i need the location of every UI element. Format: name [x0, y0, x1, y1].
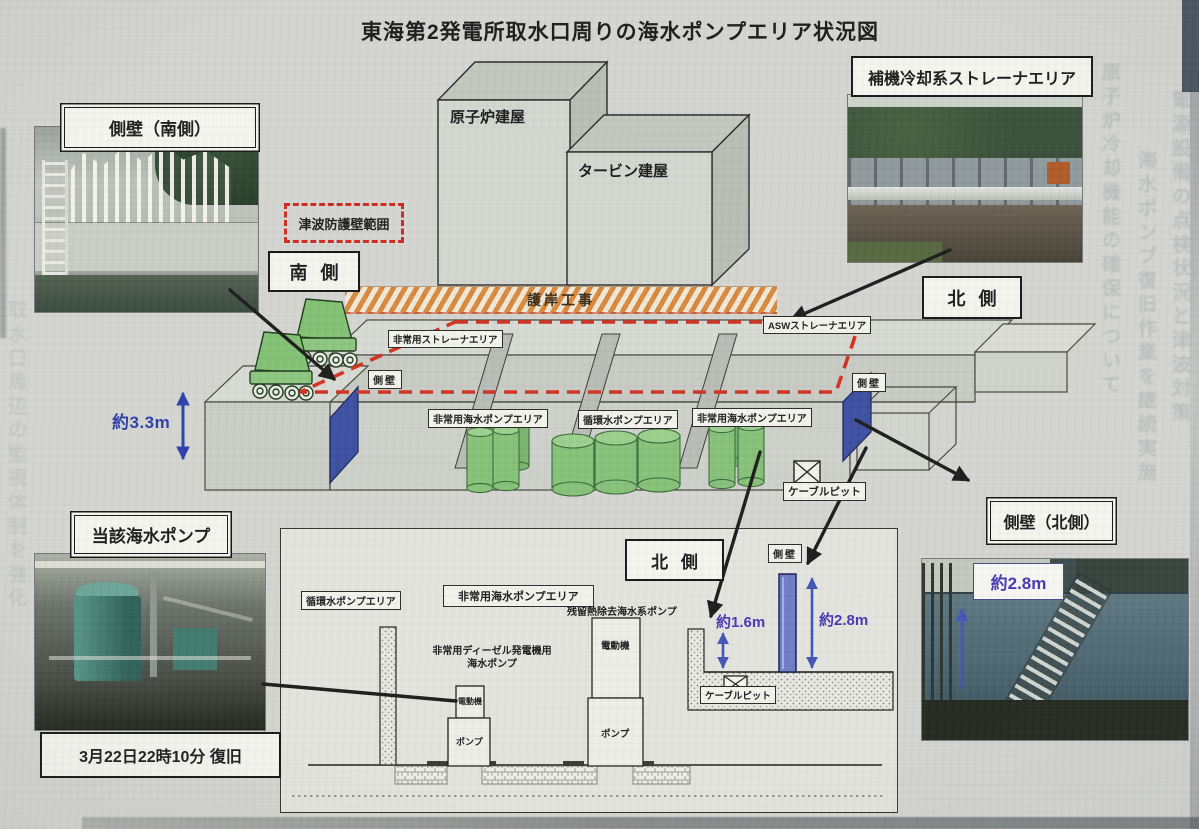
pump-right-label: ポンプ: [601, 726, 629, 740]
scanned-diagram-page: 原子炉冷却機能の確保について 海水ポンプ復旧作業を継続実施 電源設備の点検状況と…: [0, 0, 1199, 829]
section-circulating-area-label: 循環水ポンプエリア: [301, 591, 401, 610]
north-side-label: 北 側: [922, 276, 1022, 319]
motor-right-label: 電動機: [601, 638, 630, 652]
turbine-building-label: タービン建屋: [578, 160, 668, 181]
diesel-seawater-pump-label: 非常用ディーゼル発電機用 海水ポンプ: [418, 646, 566, 671]
height-3-3m-label: 約3.3m: [112, 408, 170, 433]
aux-strainer-label: 補機冷却系ストレーナエリア: [851, 56, 1093, 97]
sidewall-left-label: 側壁: [368, 370, 402, 389]
cable-pit-label: ケーブルピット: [783, 482, 866, 501]
section-north-side-label: 北 側: [625, 539, 724, 581]
pump-left-label: ポンプ: [456, 735, 483, 748]
sidewall-right-label: 側壁: [852, 373, 886, 392]
reactor-building-label: 原子炉建屋: [450, 106, 525, 127]
page-title: 東海第2発電所取水口周りの海水ポンプエリア状況図: [340, 16, 900, 46]
emergency-pump-area-left-label: 非常用海水ポンプエリア: [428, 409, 548, 428]
sidewall-north-label: 側壁（北側）: [990, 501, 1113, 541]
sidewall-south-label: 側壁（南側）: [64, 107, 256, 148]
emergency-strainer-area-label: 非常用ストレーナエリア: [388, 330, 503, 348]
circulating-pump-area-label: 循環水ポンプエリア: [578, 410, 678, 429]
tsunami-wall-range-label: 津波防護壁範囲: [284, 203, 404, 243]
subject-pump-label: 当該海水ポンプ: [74, 515, 228, 554]
cable-pit-xbox: [794, 461, 820, 483]
asw-strainer-area-label: ASWストレーナエリア: [763, 316, 871, 334]
section-cable-pit-label: ケーブルピット: [700, 686, 776, 704]
sidewall-north-height: 約2.8m: [973, 563, 1064, 600]
motor-left-label: 電動機: [458, 696, 482, 707]
rhr-seawater-pump-label: 残留熱除去海水系ポンプ: [567, 603, 677, 618]
emergency-pump-area-right-label: 非常用海水ポンプエリア: [692, 408, 812, 427]
south-side-label: 南 側: [268, 251, 360, 292]
turbine-building-shape: [567, 115, 749, 285]
restore-caption: 3月22日22時10分 復旧: [40, 732, 281, 778]
height-2-8m-label: 約2.8m: [819, 609, 868, 630]
height-1-6m-label: 約1.6m: [716, 611, 765, 632]
section-sidewall-label: 側壁: [768, 544, 802, 563]
